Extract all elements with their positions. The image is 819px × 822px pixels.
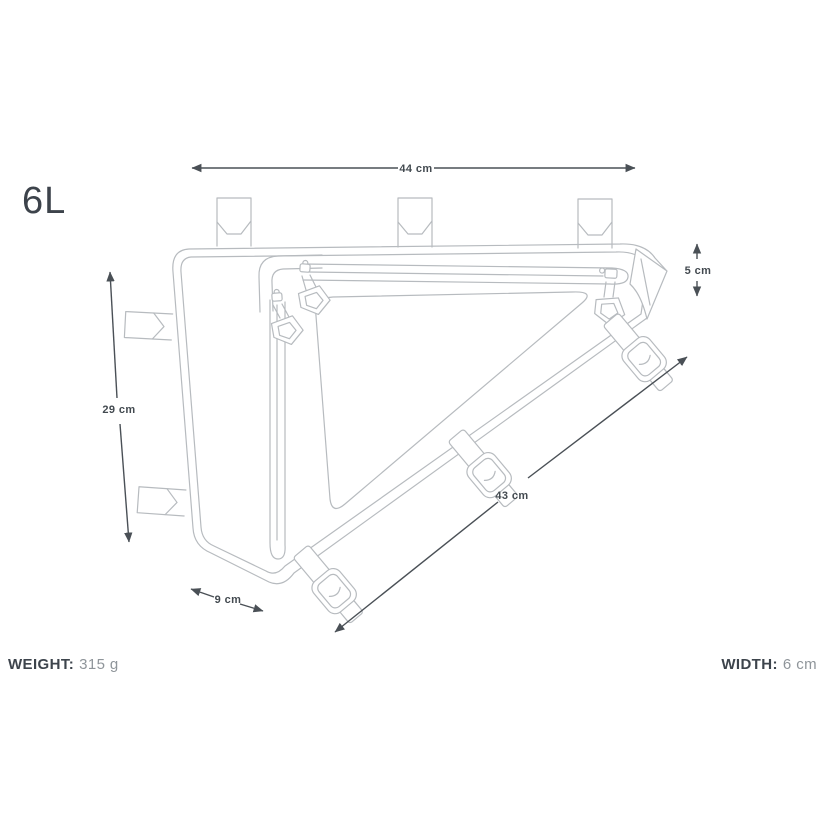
dimension-bottom: 9 cm	[191, 589, 263, 611]
dimension-right-depth: 5 cm	[685, 244, 712, 296]
dimension-label-left-height: 29 cm	[102, 404, 135, 416]
buckle-strap-top	[598, 308, 680, 397]
buckle-strap-bottom	[288, 540, 370, 629]
dimension-label-hypotenuse: 43 cm	[495, 490, 528, 502]
weight-label: WEIGHT:	[8, 656, 74, 673]
top-strap-left	[217, 198, 251, 246]
inner-panel	[316, 292, 587, 509]
dimension-left-height: 29 cm	[102, 272, 135, 542]
dimension-label-right-depth: 5 cm	[685, 265, 712, 277]
top-strap-right	[578, 199, 612, 248]
frame-bag-spec-sheet: 6L	[0, 0, 819, 822]
dimension-hypotenuse: 43 cm	[335, 357, 687, 632]
frame-bag-drawing	[124, 198, 679, 629]
top-zipper	[303, 264, 628, 284]
left-strap-top	[124, 312, 172, 340]
left-strap-bottom	[137, 487, 186, 516]
weight-spec: WEIGHT:315 g	[8, 656, 119, 673]
frame-bag-diagram: 44 cm 5 cm 29 cm 43 cm	[0, 0, 819, 822]
width-spec: WIDTH:6 cm	[721, 656, 817, 673]
right-corner-flap	[630, 249, 667, 319]
dimension-top-width: 44 cm	[192, 163, 635, 175]
top-strap-middle	[398, 198, 432, 247]
dimension-label-top-width: 44 cm	[399, 163, 432, 175]
width-label: WIDTH:	[721, 656, 778, 673]
width-value: 6 cm	[783, 656, 817, 673]
weight-value: 315 g	[79, 656, 119, 673]
bag-outline-inner	[181, 252, 648, 573]
dimension-label-bottom: 9 cm	[215, 594, 242, 606]
